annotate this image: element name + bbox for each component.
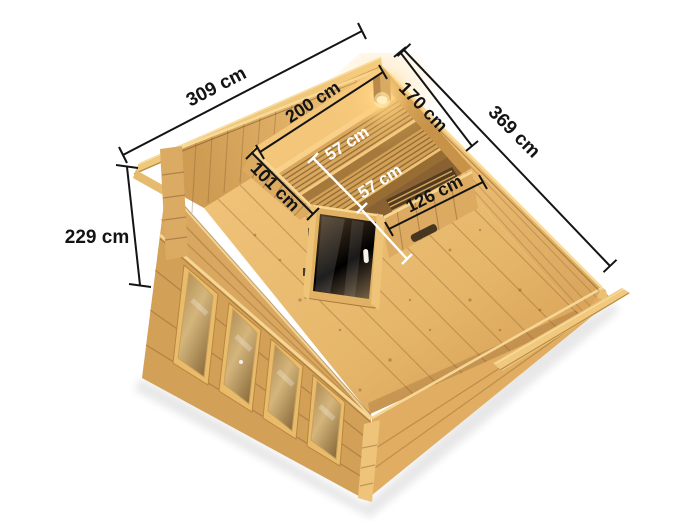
label-overall-width: 309 cm [183, 63, 250, 111]
label-wall-height: 229 cm [65, 227, 129, 248]
window-handle [239, 360, 243, 364]
product-dimension-diagram: 309 cm 369 cm 229 cm 200 cm 170 cm 101 c… [0, 0, 700, 525]
corner-lamp [373, 74, 391, 108]
label-overall-depth: 369 cm [484, 102, 544, 162]
door-handle [363, 249, 369, 263]
sauna-cabin-render: 309 cm 369 cm 229 cm 200 cm 170 cm 101 c… [0, 0, 700, 525]
